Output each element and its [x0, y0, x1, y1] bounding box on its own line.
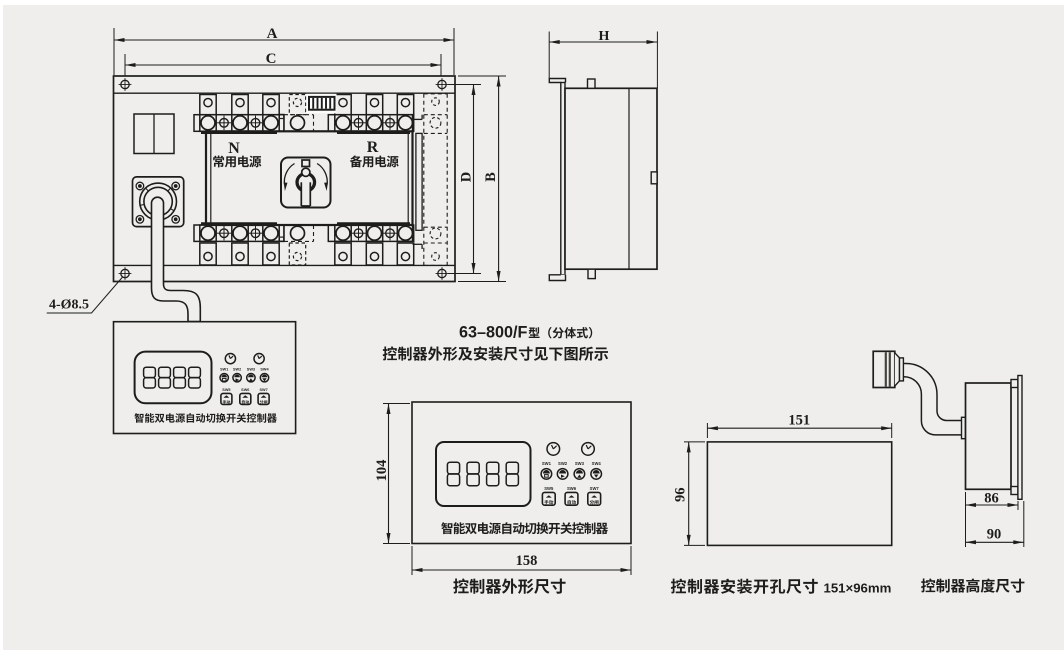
- svg-text:SW4: SW4: [592, 461, 602, 466]
- svg-text:SW3: SW3: [575, 461, 585, 466]
- svg-text:63–800/F: 63–800/F: [459, 323, 528, 341]
- svg-text:SW3: SW3: [247, 367, 255, 371]
- svg-text:96: 96: [672, 488, 688, 503]
- svg-text:SW1: SW1: [220, 367, 228, 371]
- svg-text:4-Ø8.5: 4-Ø8.5: [49, 298, 89, 313]
- svg-text:SW4: SW4: [260, 367, 269, 371]
- svg-text:SW7: SW7: [590, 486, 600, 491]
- svg-text:D: D: [459, 172, 475, 182]
- svg-text:SW2: SW2: [233, 367, 241, 371]
- svg-text:86: 86: [984, 491, 999, 507]
- svg-text:N: N: [228, 140, 240, 157]
- svg-text:SW1: SW1: [542, 461, 552, 466]
- svg-text:SW2: SW2: [558, 461, 568, 466]
- svg-text:151×96mm: 151×96mm: [824, 580, 892, 595]
- svg-text:SW6: SW6: [241, 388, 249, 392]
- svg-text:C: C: [266, 51, 277, 67]
- svg-text:R: R: [367, 139, 379, 156]
- svg-text:H: H: [599, 29, 610, 44]
- svg-text:B: B: [483, 172, 499, 182]
- svg-text:SW5: SW5: [222, 388, 230, 392]
- svg-text:SW6: SW6: [567, 486, 577, 491]
- svg-text:104: 104: [374, 460, 390, 482]
- svg-text:158: 158: [516, 553, 538, 569]
- svg-text:151: 151: [788, 413, 810, 429]
- svg-text:SW7: SW7: [259, 388, 267, 392]
- svg-text:90: 90: [987, 527, 1002, 543]
- svg-text:SW5: SW5: [544, 486, 554, 491]
- svg-text:A: A: [267, 26, 278, 42]
